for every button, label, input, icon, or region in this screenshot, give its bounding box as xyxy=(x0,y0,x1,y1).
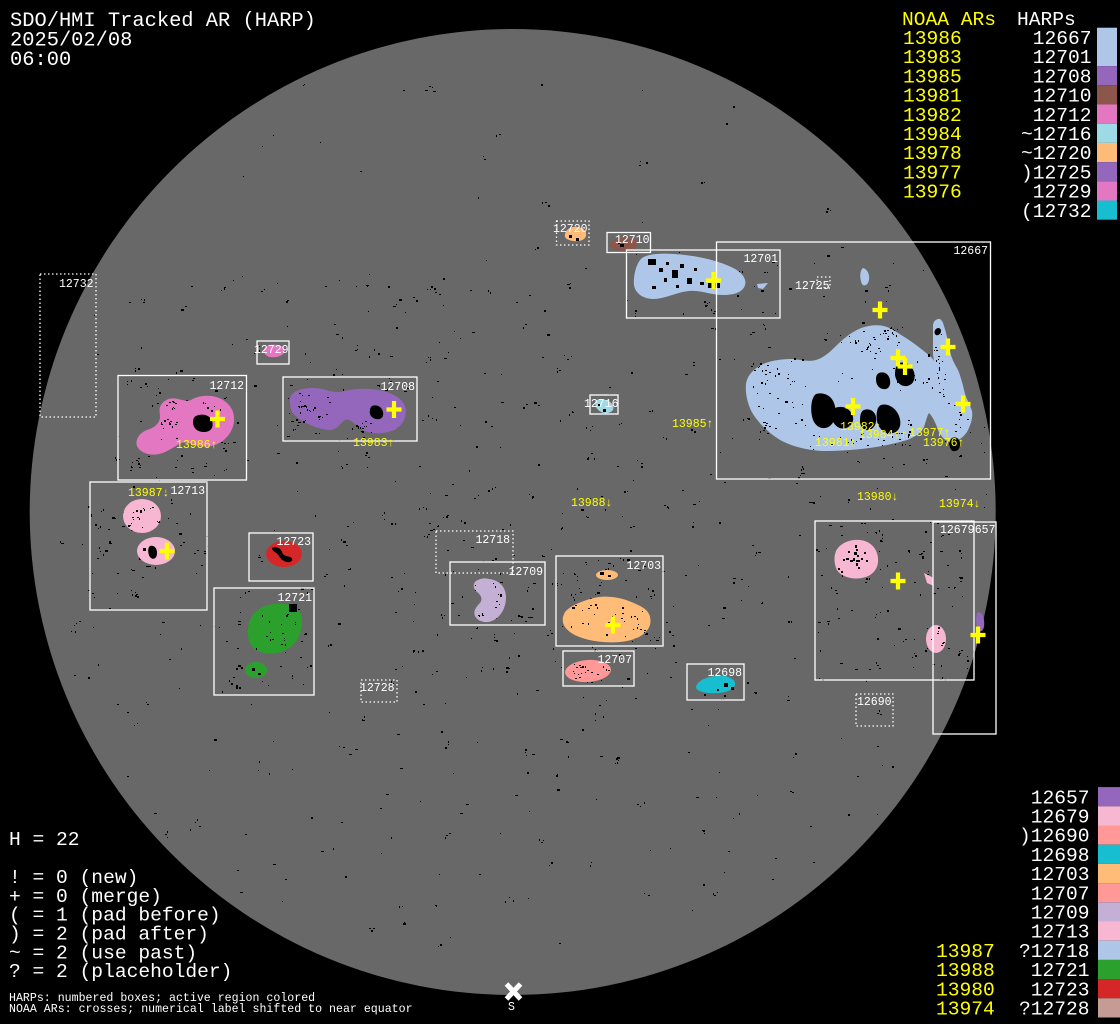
svg-text:13981↑: 13981↑ xyxy=(815,437,856,450)
svg-text:12713: 12713 xyxy=(170,485,205,498)
svg-text:12728: 12728 xyxy=(360,682,395,695)
svg-text:NOAA ARs: crosses; numerical l: NOAA ARs: crosses; numerical label shift… xyxy=(9,1003,413,1016)
svg-text:S: S xyxy=(508,1001,515,1014)
svg-text:? = 2 (placeholder): ? = 2 (placeholder) xyxy=(9,961,232,983)
svg-text:12679: 12679 xyxy=(940,524,975,537)
svg-text:12729: 12729 xyxy=(254,344,289,357)
svg-text:657: 657 xyxy=(975,524,996,537)
svg-text:12667: 12667 xyxy=(953,245,988,258)
svg-text:13974↓: 13974↓ xyxy=(939,498,980,511)
svg-text:13988↓: 13988↓ xyxy=(571,497,612,510)
svg-text:?12728: ?12728 xyxy=(1019,999,1090,1021)
svg-text:12725: 12725 xyxy=(795,280,830,293)
svg-text:13987↓: 13987↓ xyxy=(128,487,169,500)
svg-text:12708: 12708 xyxy=(380,381,415,394)
svg-text:12701: 12701 xyxy=(743,253,778,266)
svg-text:12710: 12710 xyxy=(615,234,650,247)
svg-text:12716: 12716 xyxy=(584,398,619,411)
svg-text:13974: 13974 xyxy=(936,999,995,1021)
svg-text:12718: 12718 xyxy=(475,534,510,547)
svg-text:12723: 12723 xyxy=(276,536,311,549)
svg-text:12703: 12703 xyxy=(626,560,661,573)
svg-text:12712: 12712 xyxy=(209,380,244,393)
svg-text:H = 22: H = 22 xyxy=(9,829,80,851)
svg-text:12707: 12707 xyxy=(597,654,632,667)
svg-text:12732: 12732 xyxy=(59,278,94,291)
svg-text:12721: 12721 xyxy=(277,592,312,605)
svg-text:12690: 12690 xyxy=(857,696,892,709)
svg-text:13986↑: 13986↑ xyxy=(176,439,217,452)
svg-text:12698: 12698 xyxy=(707,667,742,680)
svg-text:(12732: (12732 xyxy=(1021,201,1092,223)
svg-text:12720: 12720 xyxy=(553,223,588,236)
svg-text:13984↑↑: 13984↑↑ xyxy=(859,429,907,442)
svg-text:13985↑: 13985↑ xyxy=(672,418,713,431)
svg-text:13976↑: 13976↑ xyxy=(923,437,964,450)
svg-text:13976: 13976 xyxy=(903,182,962,204)
svg-text:12709: 12709 xyxy=(508,566,543,579)
svg-text:13980↓: 13980↓ xyxy=(857,491,898,504)
svg-text:13983↑: 13983↑ xyxy=(353,437,394,450)
svg-text:06:00: 06:00 xyxy=(10,49,71,72)
